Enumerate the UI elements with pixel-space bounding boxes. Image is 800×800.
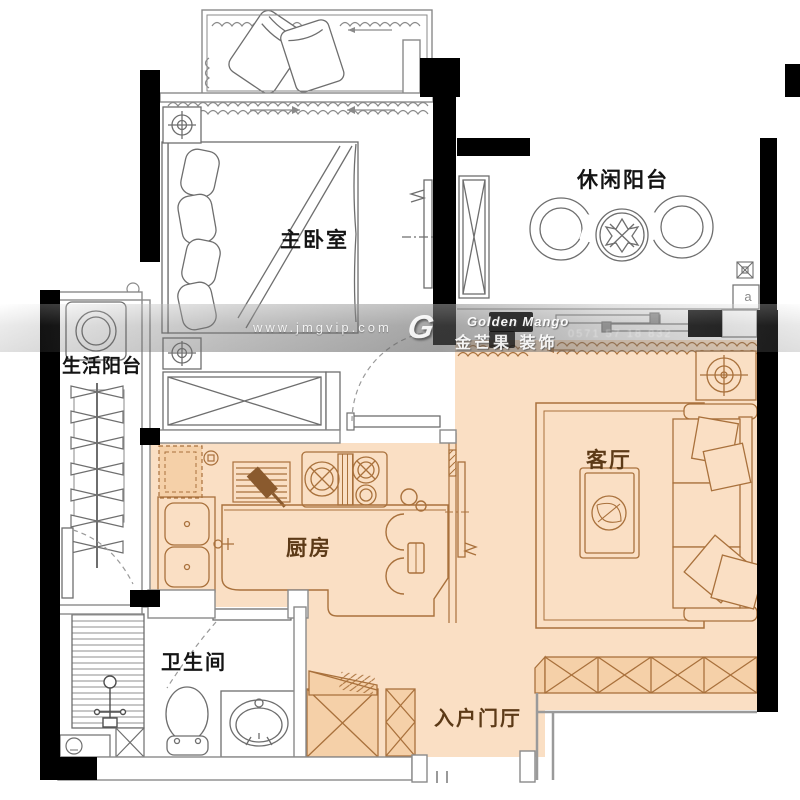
top-balcony-quilts bbox=[225, 7, 345, 97]
wall-segment bbox=[757, 310, 778, 712]
hatched-column bbox=[116, 728, 144, 757]
bedroom-top-wall bbox=[160, 93, 433, 102]
balcony-table-with-plant bbox=[596, 209, 648, 261]
balcony-cabinet bbox=[459, 176, 489, 298]
wall-segment bbox=[420, 58, 460, 97]
mop-basin bbox=[60, 735, 110, 757]
balcony-chair-left bbox=[530, 198, 603, 260]
column-top bbox=[403, 40, 420, 97]
shoe-cabinet-living bbox=[535, 657, 757, 693]
floor-plan-drawing bbox=[0, 0, 800, 800]
wall-segment bbox=[140, 428, 160, 445]
label-kitchen: 厨房 bbox=[286, 532, 332, 562]
living-room-ac-unit bbox=[696, 351, 756, 400]
wall-segment bbox=[40, 290, 60, 780]
balcony-floor-drain bbox=[737, 262, 753, 278]
utility-bathroom-wall bbox=[58, 605, 142, 614]
toilet bbox=[166, 687, 208, 755]
entry-door-post-right bbox=[520, 751, 535, 782]
vent-box-label: a bbox=[739, 288, 757, 306]
wall-segment bbox=[785, 64, 800, 97]
bottom-wall bbox=[58, 757, 412, 780]
bedroom-window bbox=[168, 103, 428, 115]
wall-segment bbox=[130, 590, 160, 607]
bathroom-vanity bbox=[221, 691, 297, 757]
utility-balcony-top-wall bbox=[58, 292, 142, 300]
entry-shoe-cabinet-large bbox=[307, 671, 378, 757]
label-living-room: 客厅 bbox=[586, 444, 632, 474]
kitchen-left-wall bbox=[142, 300, 150, 607]
bedroom-bottom-wall bbox=[148, 430, 340, 443]
wall-segment bbox=[40, 757, 97, 780]
bedroom-door-post bbox=[440, 430, 456, 443]
coffee-table bbox=[580, 468, 639, 558]
label-master-bedroom: 主卧室 bbox=[280, 224, 349, 254]
laundry-drying-rack bbox=[71, 383, 124, 568]
label-entry-hall: 入户门厅 bbox=[434, 702, 522, 731]
balcony-sliding-door bbox=[556, 313, 702, 332]
balcony-chair-right bbox=[639, 196, 713, 258]
fridge-space bbox=[159, 446, 202, 498]
wall-segment bbox=[433, 97, 456, 345]
wall-segment bbox=[760, 138, 777, 310]
gas-meter-symbol bbox=[204, 451, 218, 465]
label-utility-balcony: 生活阳台 bbox=[62, 351, 142, 378]
entry-door-post-left bbox=[412, 755, 427, 782]
bathroom-east-wall bbox=[294, 607, 306, 757]
wall-segment bbox=[457, 138, 530, 156]
label-bathroom: 卫生间 bbox=[161, 646, 227, 675]
nightstand-bottom bbox=[163, 338, 201, 369]
nightstand-top bbox=[163, 107, 201, 143]
bedroom-wardrobe bbox=[163, 372, 340, 430]
wall-segment bbox=[140, 70, 160, 262]
wall-segment bbox=[688, 310, 722, 337]
label-leisure-balcony: 休闲阳台 bbox=[577, 164, 669, 194]
balcony-sill bbox=[722, 310, 757, 337]
entry-shoe-cabinet-slim bbox=[386, 689, 415, 756]
floor-plan-canvas: 主卧室 休闲阳台 生活阳台 厨房 客厅 卫生间 入户门厅 a www.jmgvi… bbox=[0, 0, 800, 800]
shower-area bbox=[72, 614, 144, 728]
sofa bbox=[673, 404, 765, 621]
bedroom-door bbox=[347, 331, 442, 430]
entry-door-marks bbox=[437, 771, 447, 783]
